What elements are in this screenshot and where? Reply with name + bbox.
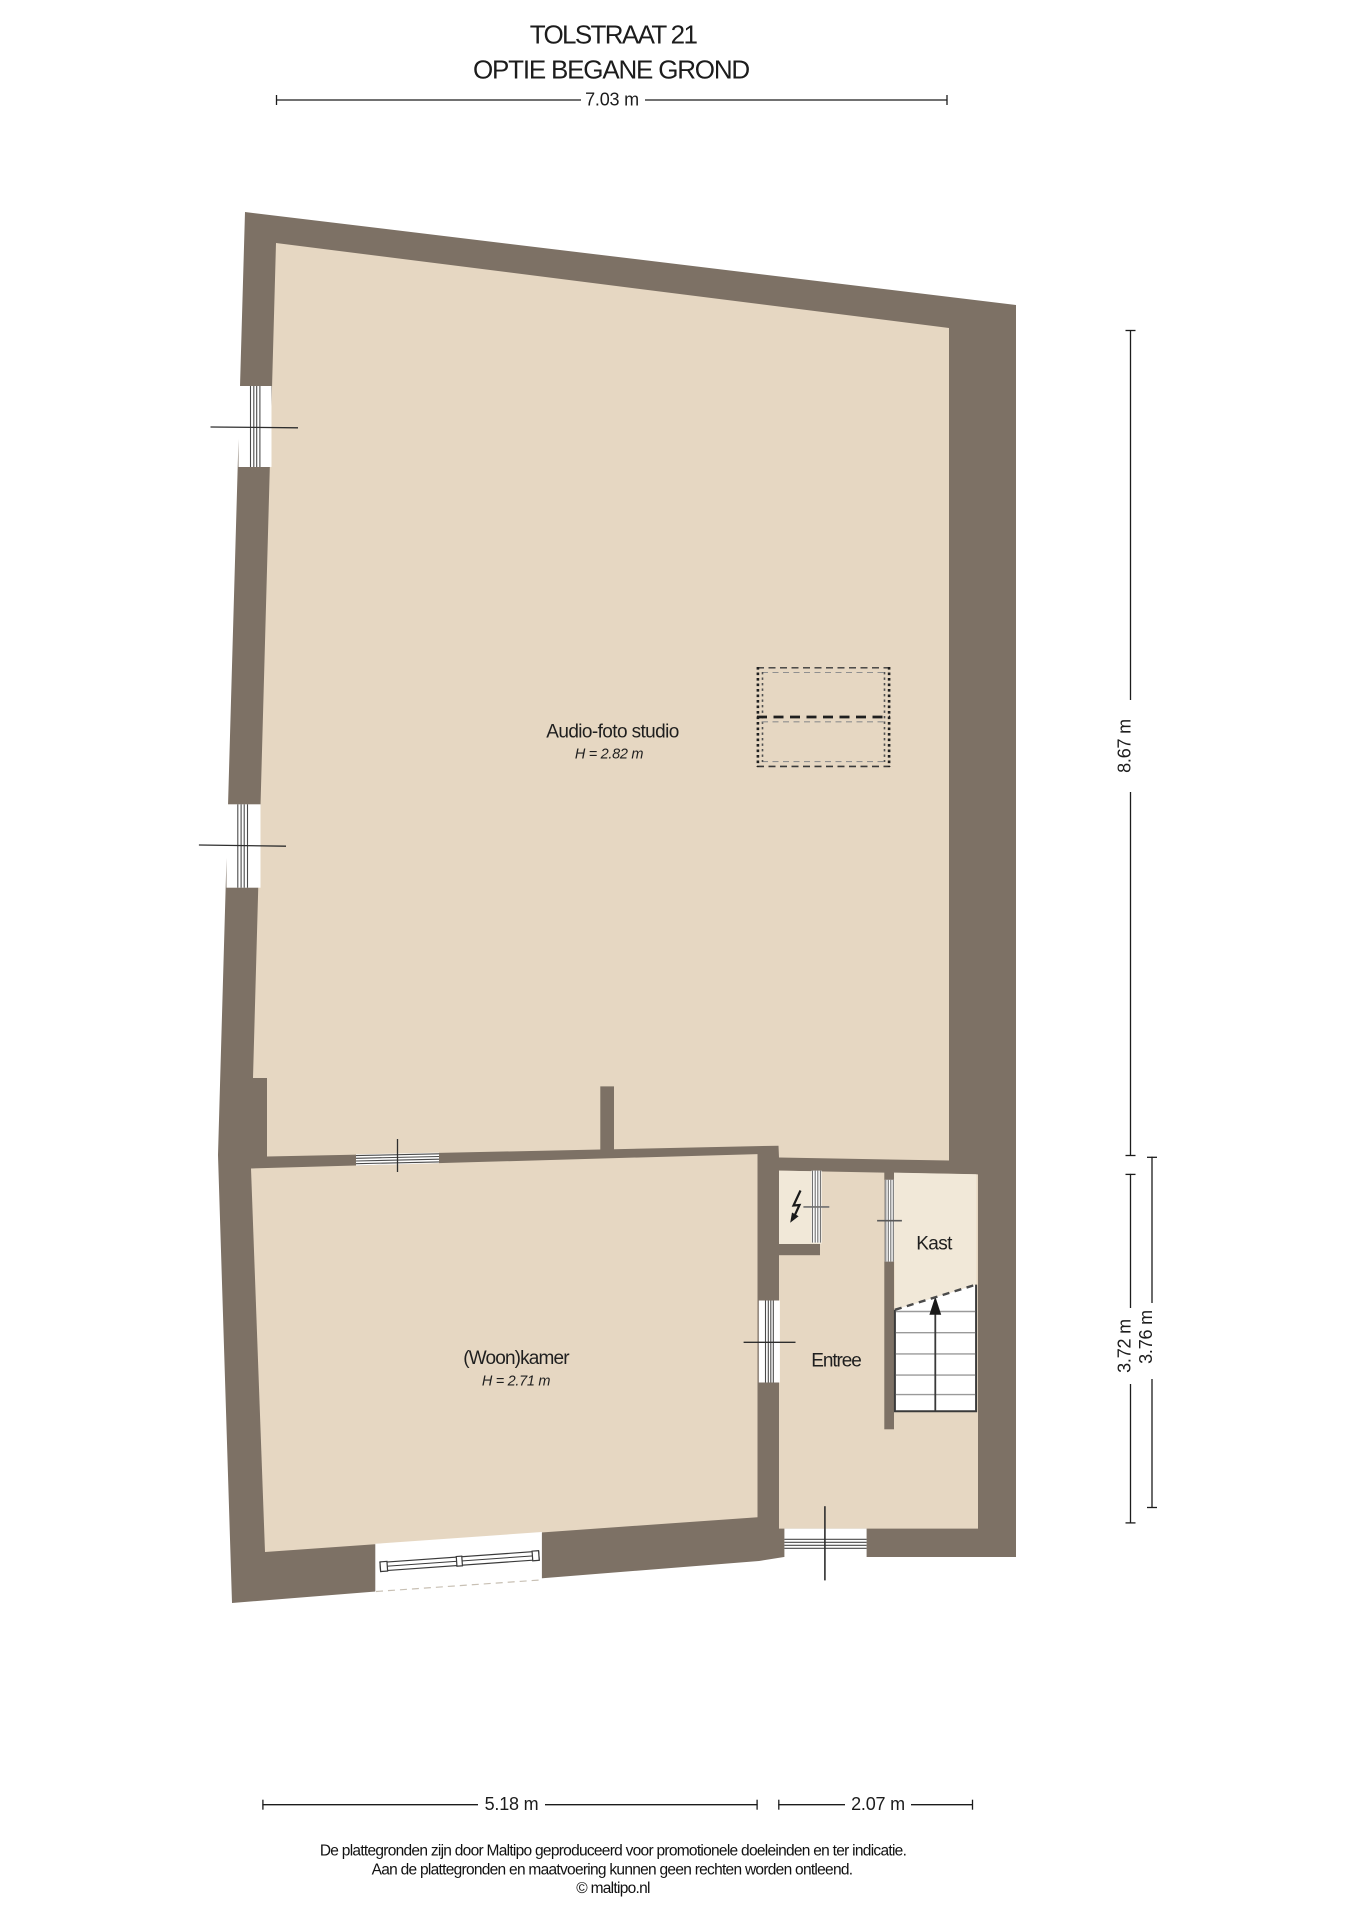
svg-text:OPTIE BEGANE GROND: OPTIE BEGANE GROND — [473, 55, 749, 85]
svg-text:8.67 m: 8.67 m — [1115, 719, 1135, 773]
svg-text:2.07 m: 2.07 m — [851, 1794, 905, 1814]
svg-text:Entree: Entree — [811, 1351, 861, 1372]
svg-text:© maltipo.nl: © maltipo.nl — [576, 1880, 650, 1897]
svg-text:Aan de plattegronden en maatvo: Aan de plattegronden en maatvoering kunn… — [372, 1862, 853, 1879]
svg-text:(Woon)kamer: (Woon)kamer — [463, 1348, 570, 1369]
svg-text:3.72 m: 3.72 m — [1115, 1319, 1135, 1373]
svg-text:7.03 m: 7.03 m — [585, 90, 639, 110]
svg-text:De plattegronden zijn door Mal: De plattegronden zijn door Maltipo gepro… — [320, 1843, 906, 1860]
svg-text:Audio-foto studio: Audio-foto studio — [546, 722, 678, 743]
svg-text:5.18 m: 5.18 m — [485, 1794, 539, 1814]
svg-text:Kast: Kast — [916, 1234, 953, 1255]
svg-text:H = 2.82 m: H = 2.82 m — [575, 747, 644, 763]
svg-text:H = 2.71 m: H = 2.71 m — [482, 1374, 551, 1390]
svg-text:3.76 m: 3.76 m — [1136, 1310, 1156, 1364]
svg-text:TOLSTRAAT 21: TOLSTRAAT 21 — [530, 20, 698, 50]
